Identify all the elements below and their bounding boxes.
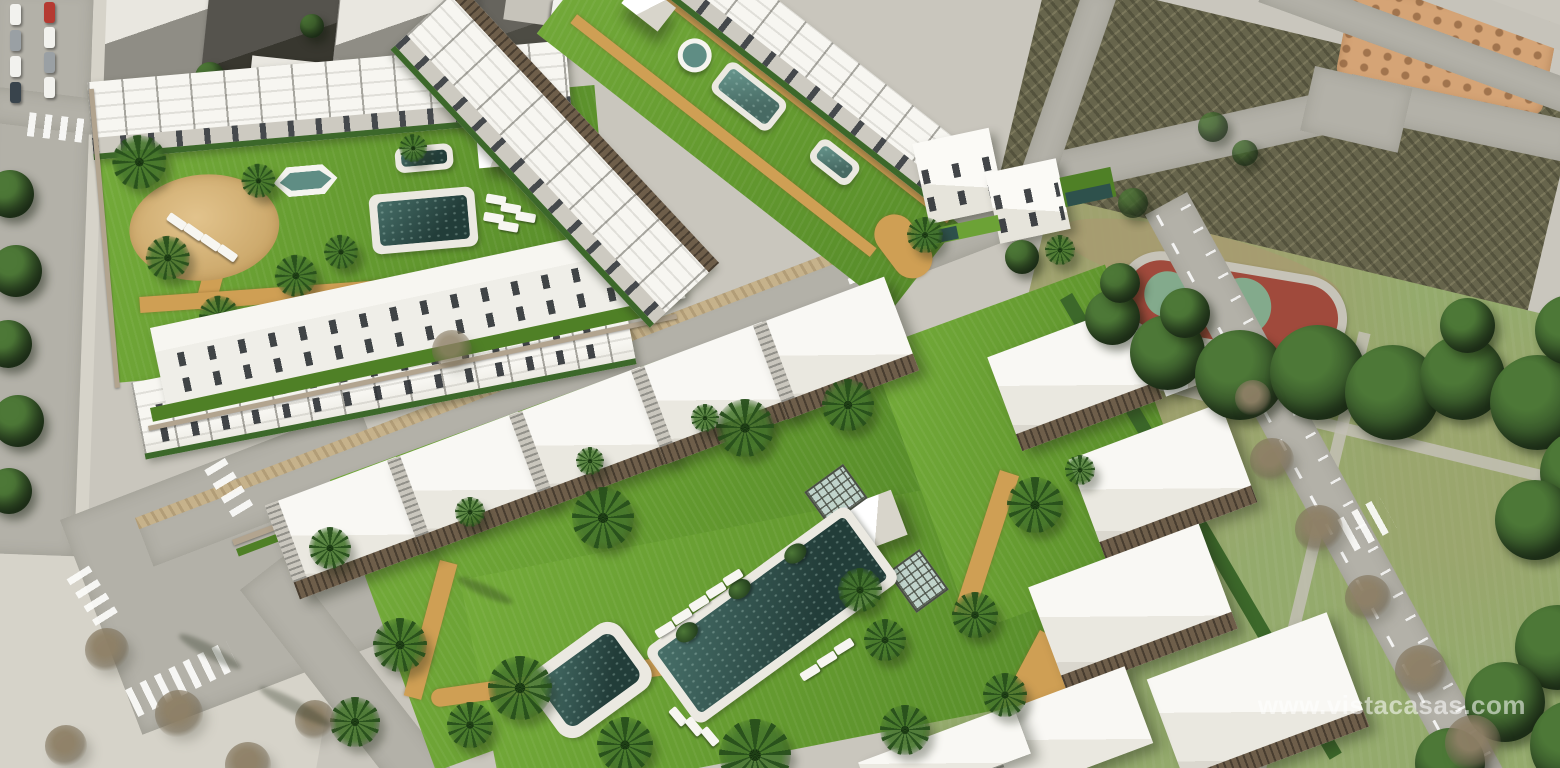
palm-tree	[691, 404, 719, 432]
round-pool-water	[678, 39, 712, 73]
palm-tree	[330, 697, 380, 747]
palm-tree	[1065, 455, 1095, 485]
palm-tree	[907, 217, 943, 253]
scrub-tree	[1232, 140, 1258, 166]
palm-tree	[309, 527, 351, 569]
palm-tree	[864, 619, 906, 661]
bare-tree	[1345, 575, 1391, 621]
palm-tree	[597, 717, 653, 768]
bare-tree	[45, 725, 87, 767]
bare-tree	[1445, 715, 1501, 768]
palm-tree	[1045, 235, 1075, 265]
palm-tree	[822, 379, 874, 431]
bare-tree	[432, 330, 472, 370]
parked-car	[10, 56, 21, 77]
parked-car	[44, 2, 55, 23]
parked-car	[44, 52, 55, 73]
bare-tree	[1295, 505, 1343, 553]
palm-tree	[447, 702, 493, 748]
parked-car	[44, 27, 55, 48]
parked-car	[10, 82, 21, 103]
palm-tree	[455, 497, 485, 527]
community-pool	[368, 186, 479, 255]
palm-tree	[716, 399, 774, 457]
pine-tree	[1005, 240, 1039, 274]
parked-car	[10, 30, 21, 51]
pine-tree	[1440, 298, 1495, 353]
window-row	[998, 206, 1066, 233]
pine-tree	[1160, 288, 1210, 338]
palm-tree	[1007, 477, 1063, 533]
palm-tree	[838, 568, 882, 612]
pine-tree	[1100, 263, 1140, 303]
palm-tree	[952, 592, 998, 638]
palm-tree	[373, 618, 427, 672]
bare-tree	[1250, 438, 1294, 482]
aerial-render-scene: www.vistacasas.com	[0, 0, 1560, 768]
water-feature-pool	[279, 169, 332, 191]
palm-tree	[572, 487, 634, 549]
window-row	[921, 156, 994, 185]
watermark: www.vistacasas.com	[1258, 690, 1526, 721]
palm-tree	[983, 673, 1027, 717]
community-pool-water	[377, 195, 470, 247]
scrub-tree	[1198, 112, 1228, 142]
palm-tree	[880, 705, 930, 755]
palm-tree	[488, 656, 552, 720]
bare-tree	[1235, 380, 1271, 416]
parked-car	[44, 77, 55, 98]
bare-tree	[155, 690, 203, 738]
scrub-tree	[1118, 188, 1148, 218]
bare-tree	[85, 628, 129, 672]
parked-car	[10, 4, 21, 25]
palm-tree	[576, 447, 604, 475]
window-row	[993, 182, 1061, 209]
